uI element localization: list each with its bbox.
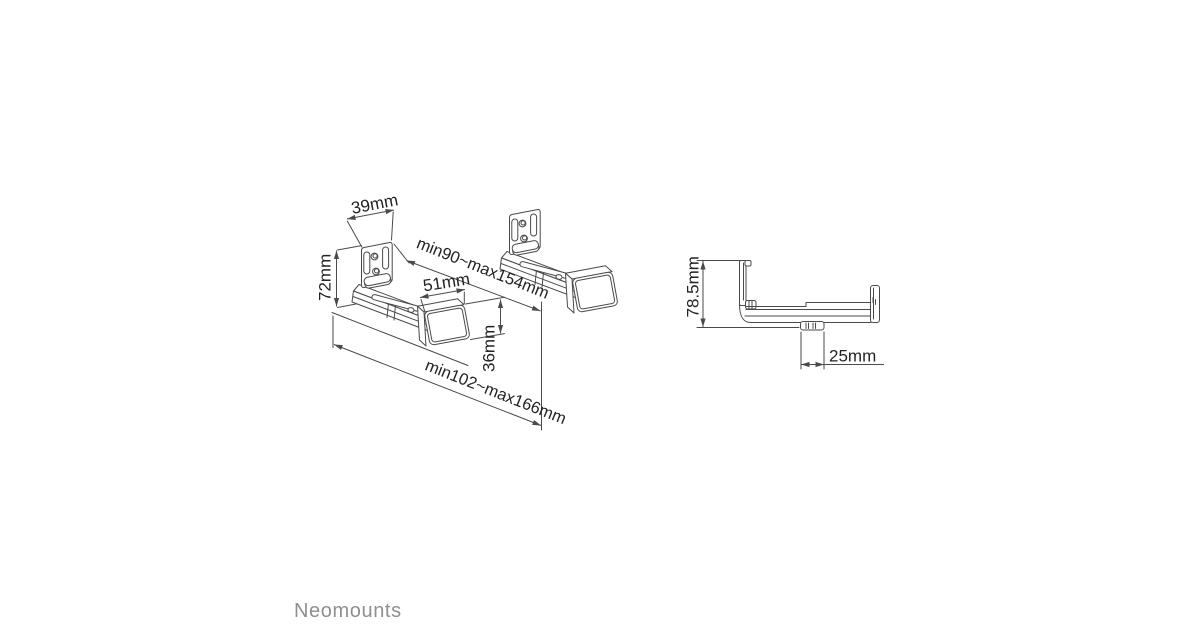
second-bracket-isometric-view [500, 210, 618, 314]
product-dimension-sheet: 39mm 72mm min90~max154mm 51mm 36mm min10… [0, 0, 1200, 630]
dim-label-51mm: 51mm [422, 269, 472, 295]
brand-logo: Neomounts [294, 600, 402, 623]
dimension-plate-width: 39mm [347, 190, 400, 247]
dimension-cap-height: 36mm [466, 297, 505, 372]
dim-label-25mm: 25mm [829, 347, 876, 366]
dim-label-36mm: 36mm [480, 325, 499, 372]
dim-label-72mm: 72mm [316, 254, 335, 301]
side-profile-view: 78.5mm 25mm [684, 256, 885, 369]
dim-label-78-5mm: 78.5mm [684, 256, 703, 317]
side-view-foot [801, 322, 825, 331]
side-view-wall-plate [740, 261, 872, 323]
side-view-arm [745, 286, 880, 323]
technical-drawing: 39mm 72mm min90~max154mm 51mm 36mm min10… [0, 0, 1200, 630]
dimension-foot-width: 25mm [801, 332, 884, 369]
